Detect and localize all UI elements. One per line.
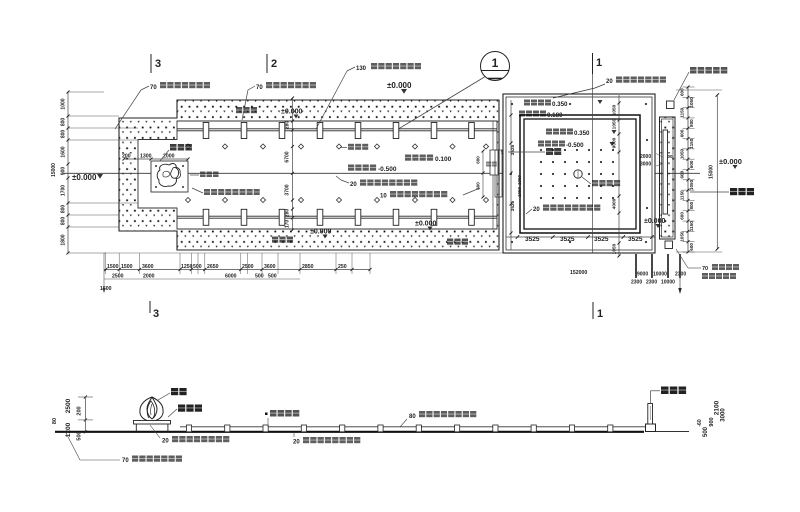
svg-text:2: 2 (271, 58, 277, 70)
svg-text:1150: 1150 (689, 138, 694, 148)
svg-text:10000: 10000 (661, 280, 675, 286)
svg-text:1500: 1500 (121, 264, 133, 270)
svg-text:2100: 2100 (714, 400, 721, 415)
svg-text:900: 900 (709, 417, 715, 426)
svg-text:1150: 1150 (680, 190, 685, 200)
svg-text:2300: 2300 (675, 272, 686, 278)
svg-text:500: 500 (255, 274, 264, 280)
svg-text:200: 200 (77, 406, 83, 415)
svg-text:2300: 2300 (646, 280, 657, 286)
svg-text:1700: 1700 (61, 185, 67, 196)
svg-text:1600: 1600 (61, 146, 67, 157)
svg-text:800: 800 (61, 118, 67, 127)
svg-text:3600: 3600 (264, 264, 276, 270)
svg-text:20: 20 (533, 207, 540, 213)
svg-text:1800: 1800 (61, 234, 67, 245)
svg-text:20: 20 (162, 439, 169, 445)
svg-text:600: 600 (689, 160, 694, 168)
svg-text:3525: 3525 (628, 236, 643, 243)
svg-text:±0.000: ±0.000 (310, 229, 331, 236)
svg-text:6700: 6700 (285, 151, 291, 162)
svg-text:4000: 4000 (612, 198, 618, 209)
svg-text:-60: -60 (697, 419, 703, 426)
svg-text:6000: 6000 (225, 274, 237, 280)
svg-text:200: 200 (122, 154, 131, 160)
svg-text:1250: 1250 (181, 264, 193, 270)
svg-text:500: 500 (703, 426, 709, 437)
svg-text:3: 3 (155, 58, 161, 70)
svg-text:1050: 1050 (517, 186, 522, 197)
svg-text:2000: 2000 (163, 154, 175, 160)
svg-text:250: 250 (338, 264, 347, 270)
svg-text:0.100: 0.100 (435, 156, 452, 163)
svg-text:3: 3 (153, 308, 159, 320)
svg-text:10000: 10000 (653, 272, 667, 278)
svg-text:1050: 1050 (612, 104, 618, 115)
svg-text:2500: 2500 (65, 398, 72, 413)
svg-text:1050: 1050 (689, 179, 694, 190)
svg-text:1050: 1050 (517, 174, 522, 185)
svg-text:-0.500: -0.500 (378, 166, 397, 173)
svg-text:20: 20 (293, 440, 300, 446)
svg-text:15000: 15000 (709, 165, 715, 179)
svg-text:1300: 1300 (140, 154, 152, 160)
svg-text:2000: 2000 (143, 274, 155, 280)
svg-text:1050: 1050 (612, 243, 618, 254)
svg-text:1500: 1500 (100, 286, 112, 292)
svg-text:1050: 1050 (612, 118, 618, 129)
svg-text:80: 80 (52, 418, 58, 424)
svg-text:3000: 3000 (640, 162, 651, 168)
svg-text:3525: 3525 (594, 236, 609, 243)
svg-text:600: 600 (680, 88, 685, 96)
svg-text:1: 1 (596, 57, 602, 69)
svg-text:600: 600 (680, 170, 685, 178)
svg-text:1150: 1150 (680, 107, 685, 117)
svg-text:3525: 3525 (525, 236, 540, 243)
svg-text:20: 20 (350, 182, 357, 188)
svg-text:2000: 2000 (640, 154, 651, 160)
svg-text:800: 800 (689, 119, 694, 127)
svg-text:3000: 3000 (721, 408, 727, 422)
svg-text:2300: 2300 (631, 280, 642, 286)
svg-text:15000: 15000 (51, 163, 57, 177)
svg-text:500: 500 (77, 431, 83, 440)
svg-text:2650: 2650 (207, 264, 219, 270)
svg-text:2850: 2850 (302, 264, 314, 270)
svg-text:800: 800 (61, 217, 67, 226)
svg-text:280: 280 (285, 209, 291, 218)
svg-text:1500: 1500 (107, 264, 119, 270)
svg-text:3600: 3600 (142, 264, 154, 270)
svg-text:600: 600 (476, 182, 481, 190)
svg-text:600: 600 (680, 212, 685, 220)
svg-text:±0.000: ±0.000 (72, 173, 97, 182)
svg-text:152000: 152000 (570, 270, 587, 276)
svg-text:2500: 2500 (112, 274, 124, 280)
svg-text:600: 600 (680, 129, 685, 137)
svg-text:1050: 1050 (680, 148, 685, 159)
svg-text:0.350: 0.350 (574, 130, 590, 137)
svg-text:9000: 9000 (637, 272, 648, 278)
svg-text:3525: 3525 (560, 236, 575, 243)
svg-text:±0.000: ±0.000 (281, 109, 302, 116)
svg-text:-0.500: -0.500 (566, 142, 584, 149)
svg-text:280: 280 (285, 121, 291, 130)
svg-text:1200: 1200 (65, 422, 72, 437)
svg-text:900: 900 (61, 167, 67, 176)
svg-text:70: 70 (122, 458, 129, 464)
svg-text:1000: 1000 (61, 98, 67, 109)
svg-text:1050: 1050 (689, 97, 694, 108)
svg-text:800: 800 (689, 201, 694, 209)
svg-text:0.350: 0.350 (552, 101, 568, 108)
svg-text:±0.000: ±0.000 (387, 81, 412, 90)
svg-text:70: 70 (256, 85, 263, 91)
svg-text:2500: 2500 (242, 264, 254, 270)
svg-text:10: 10 (380, 194, 387, 200)
svg-text:1: 1 (597, 308, 603, 320)
svg-text:800: 800 (61, 205, 67, 214)
svg-text:20: 20 (606, 79, 613, 85)
svg-text:500: 500 (268, 274, 277, 280)
svg-text:170: 170 (285, 220, 291, 229)
svg-text:130: 130 (356, 66, 367, 72)
svg-text:70: 70 (150, 85, 157, 91)
svg-text:3525: 3525 (510, 144, 516, 155)
svg-text:600: 600 (476, 156, 481, 164)
svg-text:600: 600 (689, 243, 694, 251)
svg-text:3525: 3525 (510, 200, 516, 211)
svg-text:1150: 1150 (689, 221, 694, 231)
svg-text:±0.000: ±0.000 (415, 221, 436, 228)
svg-text:1050: 1050 (680, 231, 685, 242)
svg-text:1: 1 (492, 56, 499, 70)
svg-text:3700: 3700 (285, 184, 291, 195)
svg-text:±0.000: ±0.000 (719, 157, 742, 166)
svg-text:80: 80 (409, 414, 416, 420)
svg-text:70: 70 (702, 266, 708, 272)
svg-text:0.180: 0.180 (547, 112, 563, 119)
svg-text:800: 800 (61, 130, 67, 139)
svg-text:500: 500 (193, 264, 202, 270)
